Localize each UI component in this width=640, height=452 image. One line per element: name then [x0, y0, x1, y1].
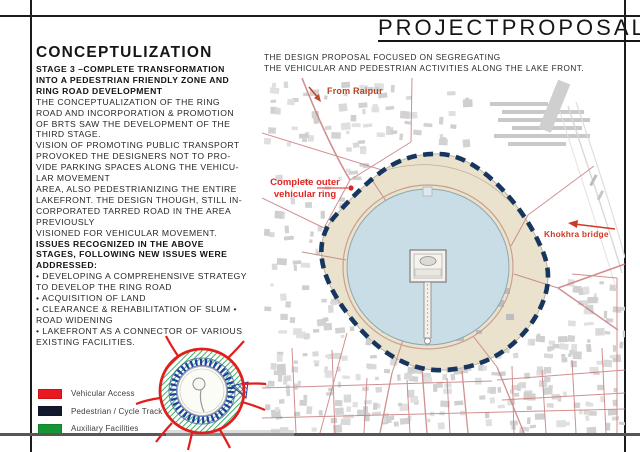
- proposal-sheet: PROJECT PROPOSAL CONCEPTULIZATION STAGE …: [0, 0, 640, 452]
- text-line: • CLEARANCE & REHABILITATION OF SLUM •: [36, 304, 262, 315]
- title-word-project: PROJECT: [378, 17, 502, 42]
- text-line: STAGE 3 –COMPLETE TRANSFORMATION: [36, 64, 262, 75]
- legend-swatch-pedestrian: [38, 406, 62, 416]
- text-line: VIDE PARKING SPACES ALONG THE VEHICU-: [36, 162, 262, 173]
- text-line: LAR MOVEMENT: [36, 173, 262, 184]
- page-title: PROJECT PROPOSAL: [378, 17, 624, 42]
- text-line: ROAD WIDENING: [36, 315, 262, 326]
- text-line: INTO A PEDESTRIAN FRIENDLY ZONE AND: [36, 75, 262, 86]
- text-line: ROAD AND INCORPORATION & PROMOTION: [36, 108, 262, 119]
- section-heading: CONCEPTULIZATION: [36, 44, 213, 62]
- label-outer-ring-line1: Complete outer: [258, 177, 352, 189]
- concept-ring-sketch: [128, 328, 274, 452]
- lake-inlet: [423, 187, 432, 196]
- frame-left-rule: [30, 0, 32, 452]
- legend-swatch-vehicular: [38, 389, 62, 399]
- text-line: LAKEFRONT. THE DESIGN THOUGH, STILL IN-: [36, 195, 262, 206]
- frame-bottom-rule: [0, 433, 640, 436]
- text-line: PREVIOUSLY: [36, 217, 262, 228]
- text-line: VISION OF PROMOTING PUBLIC TRANSPORT: [36, 140, 262, 151]
- text-line: THIRD STAGE.: [36, 129, 262, 140]
- text-line: PROVOKED THE DESIGNERS NOT TO PRO-: [36, 151, 262, 162]
- text-line: OF BRTS SAW THE DEVELOPMENT OF THE: [36, 119, 262, 130]
- title-word-proposal: PROPOSAL: [502, 17, 640, 42]
- bridge-arrow: [568, 220, 615, 229]
- island: [410, 250, 446, 282]
- pier: [424, 282, 431, 344]
- text-line: STAGES, FOLLOWING NEW ISSUES WERE: [36, 249, 262, 260]
- text-line: VISIONED FOR VEHICULAR MOVEMENT.: [36, 228, 262, 239]
- site-map: [262, 78, 625, 433]
- map-intro-line-2: THE VEHICULAR AND PEDESTRIAN ACTIVITIES …: [264, 64, 584, 73]
- text-line: RING ROAD DEVELOPMENT: [36, 86, 262, 97]
- text-line: ISSUES RECOGNIZED IN THE ABOVE: [36, 239, 262, 250]
- map-intro-line-1: THE DESIGN PROPOSAL FOCUSED ON SEGREGATI…: [264, 53, 501, 62]
- sketch-island: [193, 378, 205, 390]
- label-outer-ring-line2: vehicular ring: [258, 189, 352, 201]
- text-line: • DEVELOPING A COMPREHENSIVE STRATEGY: [36, 271, 262, 282]
- label-khokhra-bridge: Khokhra bridge: [544, 229, 609, 239]
- text-line: THE CONCEPTUALIZATION OF THE RING: [36, 97, 262, 108]
- text-line: CORPORATED TARRED ROAD IN THE AREA: [36, 206, 262, 217]
- label-from-raipur: From Raipur: [327, 86, 383, 96]
- text-line: TO DEVELOP THE RING ROAD: [36, 282, 262, 293]
- legend-label-vehicular: Vehicular Access: [71, 389, 135, 398]
- text-line: AREA, ALSO PEDESTRIANIZING THE ENTIRE: [36, 184, 262, 195]
- text-line: • ACQUISITION OF LAND: [36, 293, 262, 304]
- label-complete-outer-ring: Complete outer vehicular ring: [258, 177, 352, 200]
- body-text: STAGE 3 –COMPLETE TRANSFORMATIONINTO A P…: [36, 64, 262, 348]
- text-line: ADDRESSED:: [36, 260, 262, 271]
